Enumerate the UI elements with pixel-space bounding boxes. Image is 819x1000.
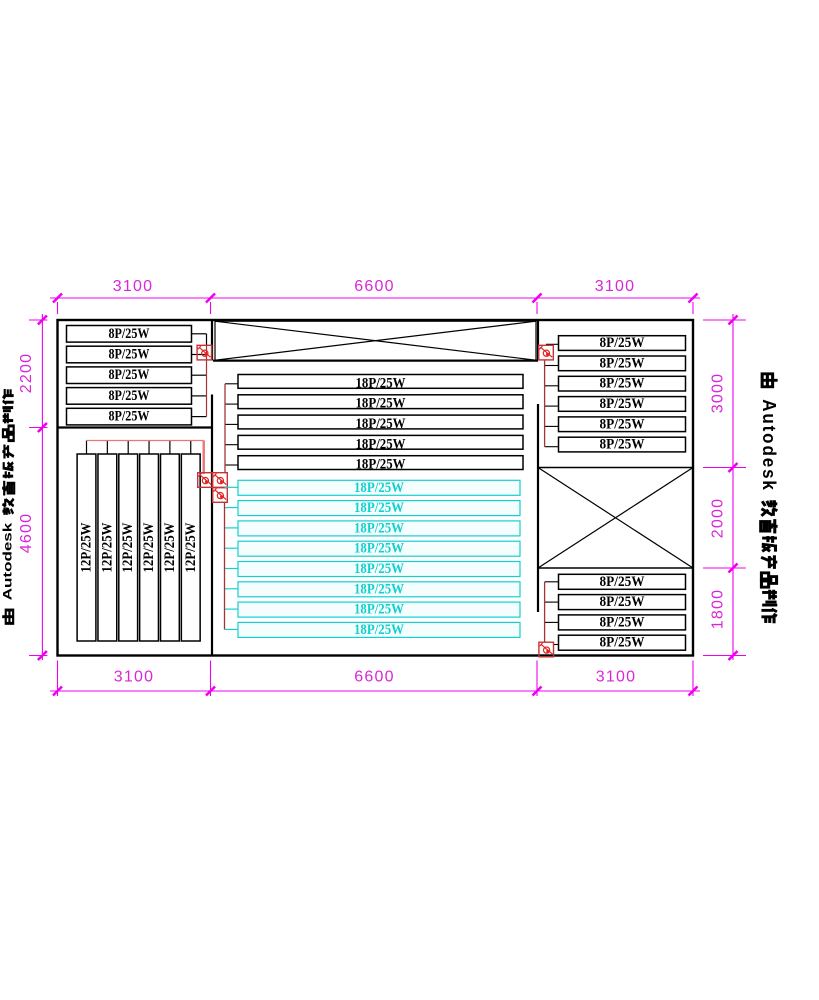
svg-text:3100: 3100	[595, 278, 635, 295]
svg-text:18P/25W: 18P/25W	[356, 375, 406, 391]
svg-text:18P/25W: 18P/25W	[354, 561, 404, 577]
svg-text:18P/25W: 18P/25W	[356, 457, 406, 473]
svg-text:18P/25W: 18P/25W	[354, 500, 404, 516]
svg-text:2200: 2200	[18, 353, 35, 393]
svg-text:18P/25W: 18P/25W	[356, 436, 406, 452]
svg-text:2000: 2000	[710, 498, 727, 538]
svg-text:1800: 1800	[710, 589, 727, 629]
svg-text:8P/25W: 8P/25W	[600, 416, 645, 432]
svg-text:18P/25W: 18P/25W	[354, 602, 404, 618]
svg-text:12P/25W: 12P/25W	[120, 522, 136, 572]
svg-text:8P/25W: 8P/25W	[600, 594, 645, 610]
svg-text:18P/25W: 18P/25W	[356, 396, 406, 412]
svg-text:8P/25W: 8P/25W	[109, 367, 150, 383]
svg-text:18P/25W: 18P/25W	[354, 541, 404, 557]
svg-text:8P/25W: 8P/25W	[109, 388, 150, 404]
svg-text:8P/25W: 8P/25W	[600, 335, 645, 351]
svg-text:18P/25W: 18P/25W	[354, 480, 404, 496]
svg-text:8P/25W: 8P/25W	[600, 635, 645, 651]
svg-text:8P/25W: 8P/25W	[109, 326, 150, 342]
svg-text:3100: 3100	[596, 669, 636, 686]
svg-text:18P/25W: 18P/25W	[354, 581, 404, 597]
svg-text:8P/25W: 8P/25W	[600, 574, 645, 590]
svg-text:8P/25W: 8P/25W	[600, 355, 645, 371]
svg-text:8P/25W: 8P/25W	[600, 614, 645, 630]
svg-text:8P/25W: 8P/25W	[109, 409, 150, 425]
svg-text:18P/25W: 18P/25W	[354, 520, 404, 536]
svg-text:6600: 6600	[354, 278, 394, 295]
svg-text:Autodesk: Autodesk	[2, 522, 15, 600]
svg-text:8P/25W: 8P/25W	[600, 376, 645, 392]
svg-text:12P/25W: 12P/25W	[141, 522, 157, 572]
svg-text:8P/25W: 8P/25W	[109, 347, 150, 363]
svg-text:8P/25W: 8P/25W	[600, 396, 645, 412]
svg-text:18P/25W: 18P/25W	[354, 622, 404, 638]
svg-text:3000: 3000	[710, 373, 727, 413]
svg-text:4600: 4600	[18, 513, 35, 553]
svg-text:12P/25W: 12P/25W	[79, 522, 95, 572]
svg-text:6600: 6600	[354, 669, 394, 686]
svg-text:12P/25W: 12P/25W	[99, 522, 115, 572]
svg-text:12P/25W: 12P/25W	[183, 522, 199, 572]
svg-text:Autodesk: Autodesk	[759, 399, 780, 492]
svg-text:18P/25W: 18P/25W	[356, 416, 406, 432]
svg-text:12P/25W: 12P/25W	[162, 522, 178, 572]
svg-text:3100: 3100	[113, 278, 153, 295]
svg-text:8P/25W: 8P/25W	[600, 437, 645, 453]
svg-text:3100: 3100	[114, 669, 154, 686]
